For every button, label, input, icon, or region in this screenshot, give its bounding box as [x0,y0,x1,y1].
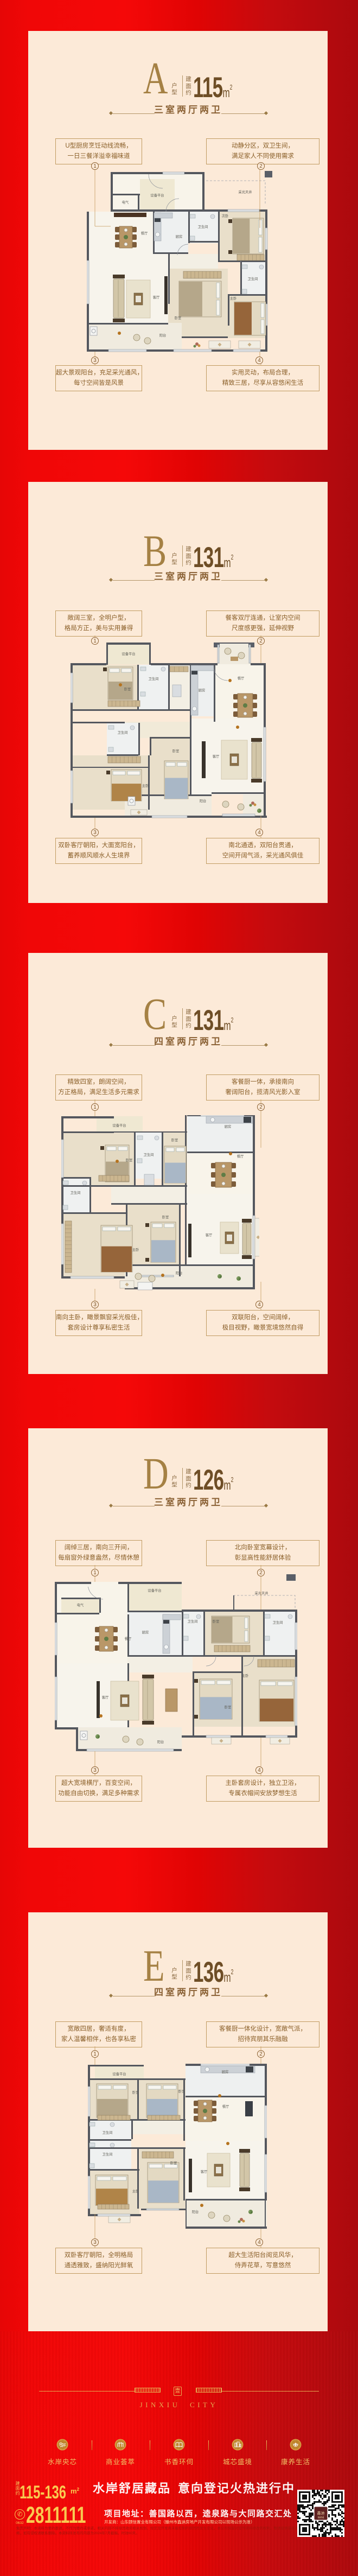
svg-text:鑫迪: 鑫迪 [317,2511,325,2516]
svg-text:锦绣城: 锦绣城 [318,2516,324,2519]
